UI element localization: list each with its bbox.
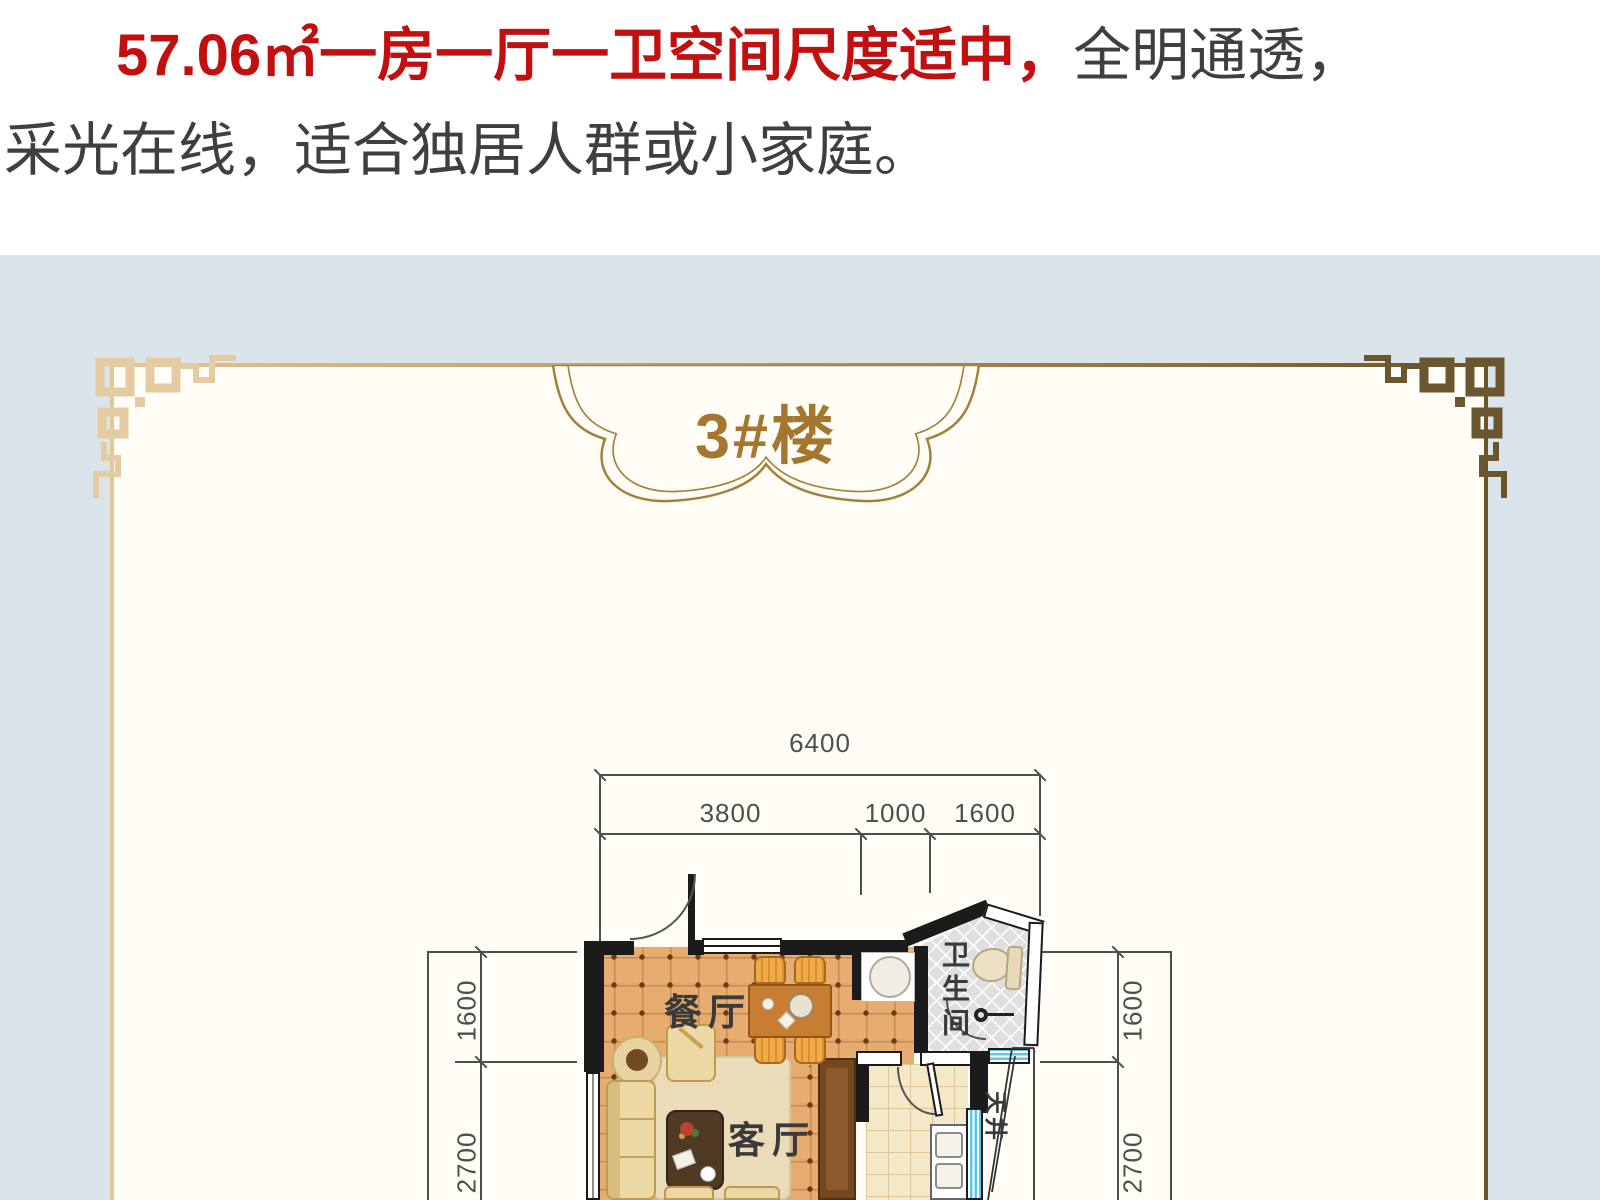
sofa-seam [620,1156,654,1158]
toilet-tank [1004,945,1023,990]
page: 57.06㎡一房一厅一卫空间尺度适中，全明通透， 采光在线，适合独居人群或小家庭… [0,0,1600,1200]
entry-door-arc [630,874,696,940]
dim-connector [1040,951,1172,953]
dining-chair [754,956,786,984]
dim-total-width: 6400 [600,728,1040,759]
armchair-bottom [664,1186,714,1200]
dining-chair [754,1036,786,1064]
wall [584,941,604,1072]
sink [935,1163,963,1189]
plate [762,998,774,1010]
dim-right: 2700 [1118,1108,1149,1200]
bathroom-left-wall [914,946,928,1053]
dim-segment: 1600 [930,798,1040,829]
dim-extension [860,833,862,895]
sofa-seam [620,1118,654,1120]
window-top [702,938,782,954]
dining-chair [794,1036,826,1064]
armchair-bottom [724,1186,780,1200]
table-coaster [700,1166,716,1182]
kitchen-left-wall [855,1064,869,1122]
window-left [586,1072,600,1200]
dish [788,993,814,1019]
dim-left: 1600 [452,956,483,1066]
dim-boundary [427,951,429,1200]
dim-line [600,774,1040,776]
room-label-lightwell: 天井 [981,1087,1015,1147]
coffee-table [666,1110,724,1190]
dim-boundary [1170,951,1172,1200]
dining-chair [794,956,826,984]
sink [935,1132,963,1158]
table-flowers [680,1122,694,1136]
room-label-bathroom: 卫生间 [934,940,974,1052]
floor-plan: 6400 3800 1000 1600 1600 2700 160 [0,0,1600,1200]
dim-segment: 3800 [600,798,861,829]
dim-connector [1040,1061,1119,1063]
sofa [606,1080,656,1200]
dim-left: 2700 [452,1108,483,1200]
dim-right: 1600 [1118,956,1149,1066]
dim-line [600,833,1040,835]
dim-segment: 1000 [861,798,930,829]
room-label-dining: 餐厅 [664,982,752,1036]
round-rug-motif [626,1049,648,1071]
dim-extension [929,833,931,893]
wardrobe-panel [826,1068,848,1190]
shower-arm [988,1013,1014,1016]
room-label-living: 客厅 [728,1110,816,1164]
dim-connector [427,951,577,953]
dim-extension [1039,774,1041,916]
dim-extension [599,774,601,941]
shower-icon [974,1008,988,1022]
washbasin [869,956,911,998]
